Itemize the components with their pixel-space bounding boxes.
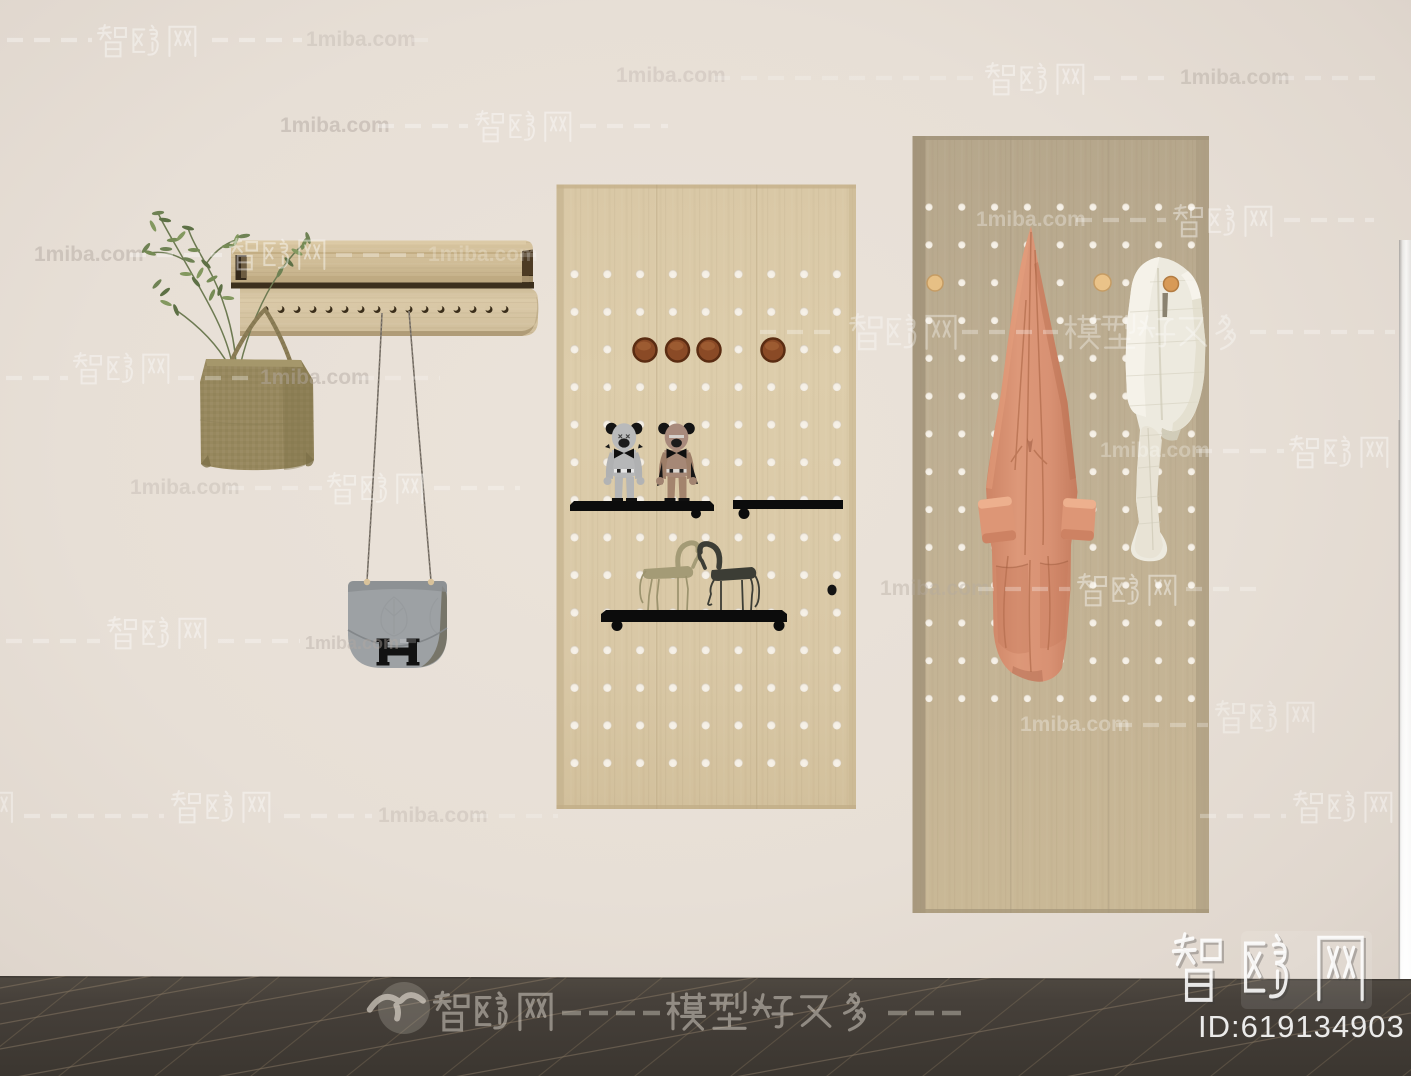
svg-text:1miba.com: 1miba.com [616,64,726,87]
svg-text:1miba.com: 1miba.com [976,208,1086,231]
svg-text:1miba.com: 1miba.com [1100,439,1210,462]
svg-text:1miba.com: 1miba.com [280,114,390,137]
svg-text:1miba.com: 1miba.com [880,577,990,600]
svg-text:1miba.com: 1miba.com [130,476,240,499]
svg-text:1miba.com: 1miba.com [34,243,144,266]
svg-text:1miba.com: 1miba.com [1180,66,1290,89]
svg-text:1miba.com: 1miba.com [306,28,416,51]
svg-text:ID:619134903: ID:619134903 [1198,1009,1405,1044]
svg-text:1miba.com: 1miba.com [260,366,370,389]
svg-text:1miba.com: 1miba.com [1020,713,1130,736]
svg-text:1miba.com: 1miba.com [305,633,399,653]
svg-text:1miba.com: 1miba.com [378,804,488,827]
